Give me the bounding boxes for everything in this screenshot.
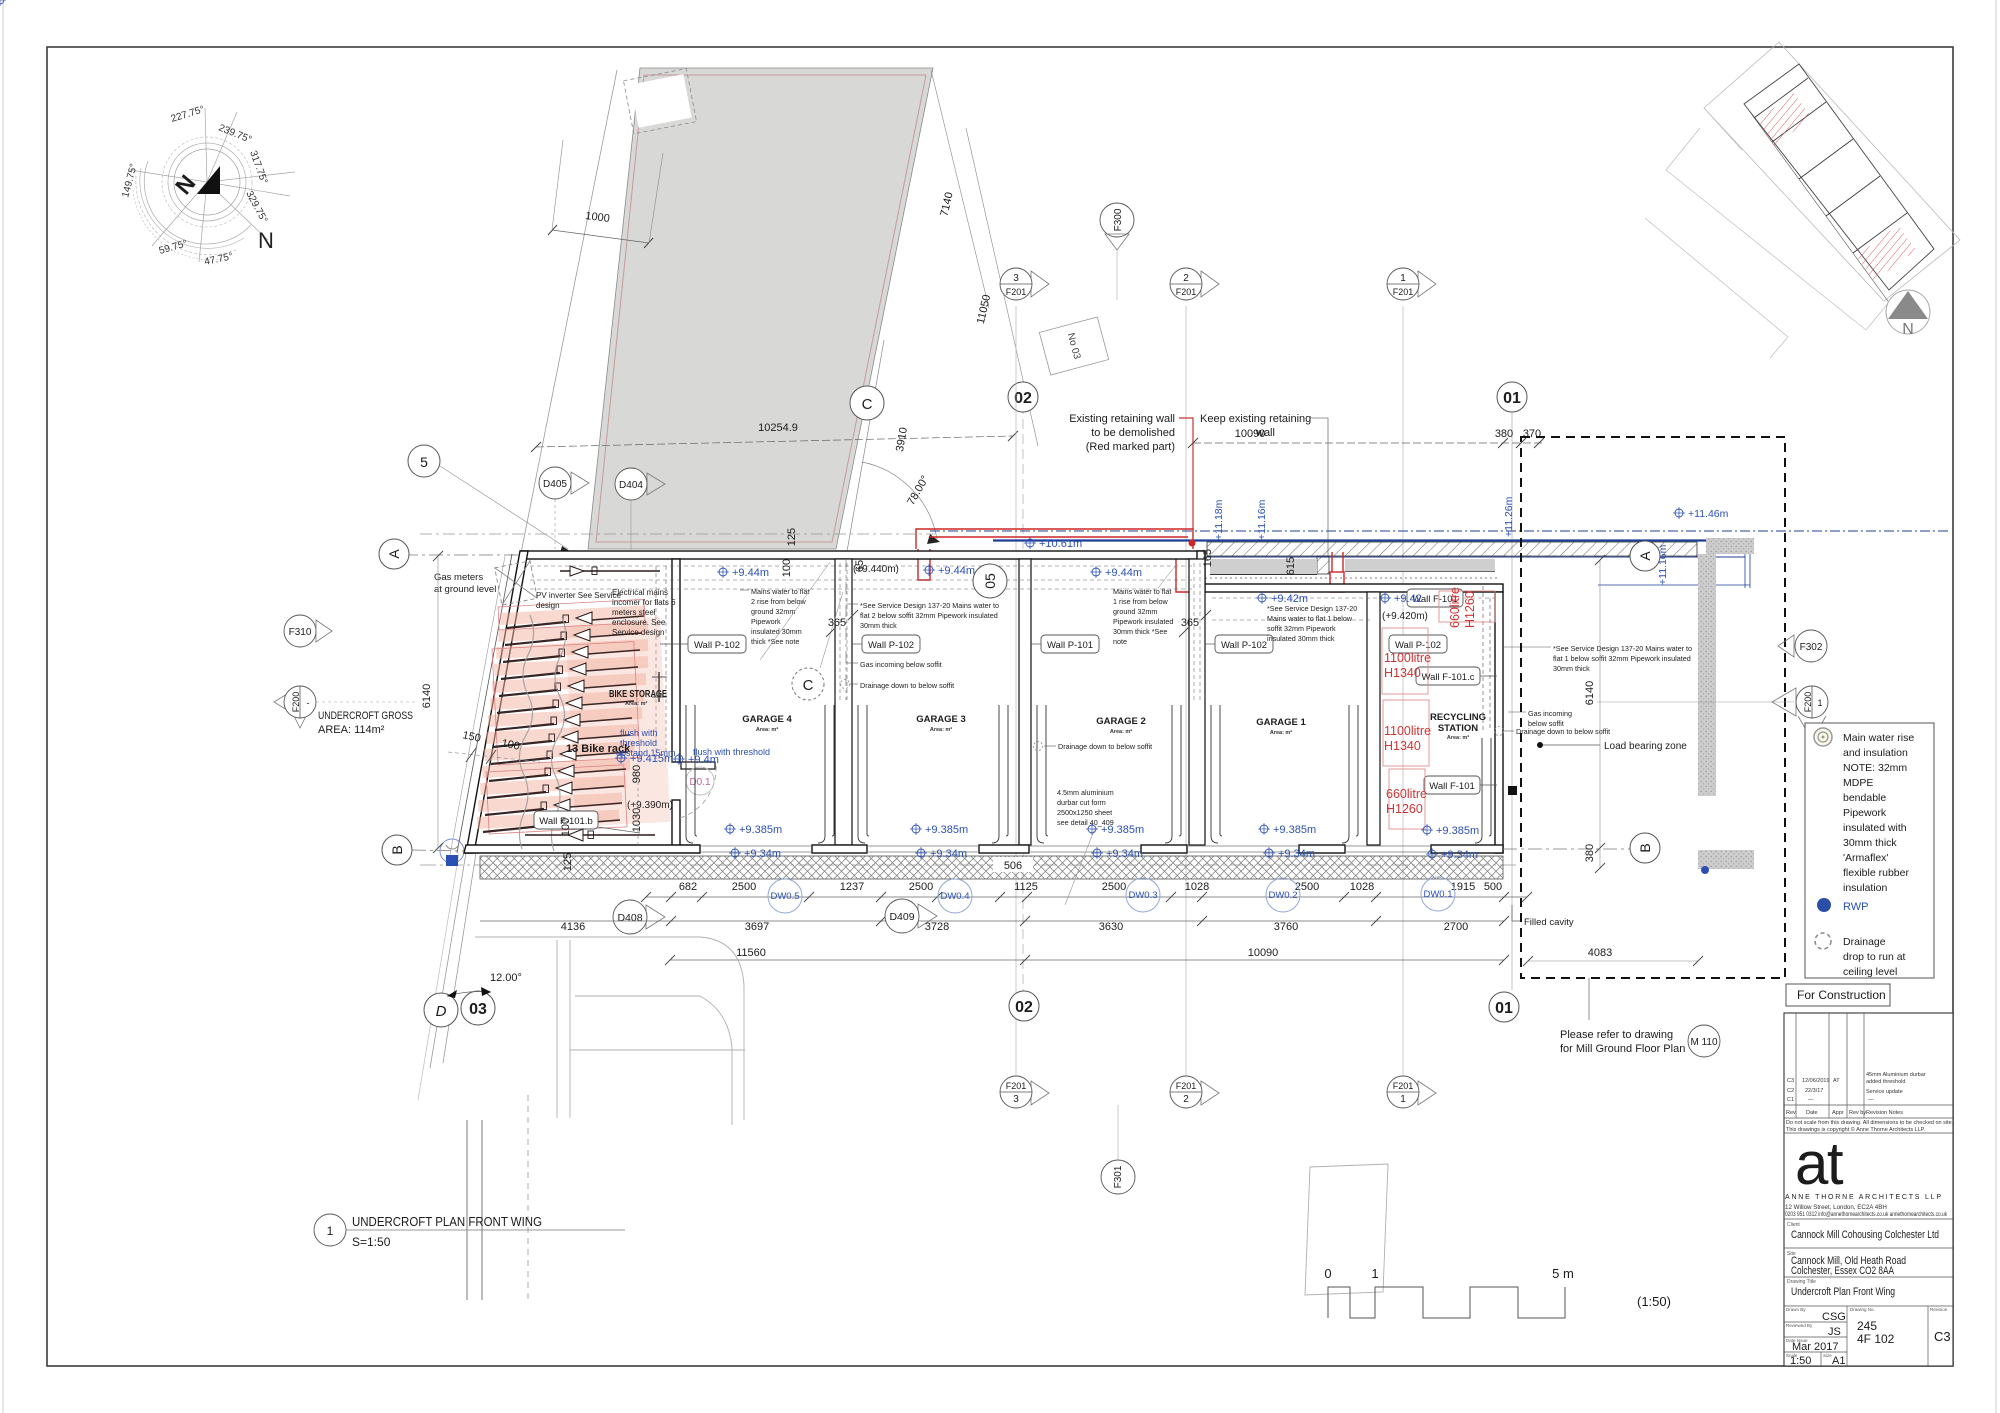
svg-text:Load bearing zone: Load bearing zone [1604, 741, 1687, 752]
svg-text:660litre: 660litre [1386, 787, 1427, 801]
svg-text:STATION: STATION [1438, 723, 1478, 734]
svg-text:-: - [307, 698, 310, 708]
svg-text:65: 65 [854, 560, 866, 572]
svg-text:Drainage down to below soffit: Drainage down to below soffit [1058, 742, 1152, 751]
svg-text:+9.34m: +9.34m [1106, 848, 1143, 860]
svg-text:2500x1250 sheet: 2500x1250 sheet [1057, 808, 1112, 817]
svg-text:1125: 1125 [1014, 881, 1038, 893]
svg-text:4.5mm aluminium: 4.5mm aluminium [1057, 788, 1114, 797]
svg-text:at: at [1795, 1130, 1844, 1197]
svg-text:B: B [389, 845, 405, 854]
svg-text:A: A [386, 549, 402, 559]
svg-text:125: 125 [562, 853, 574, 871]
svg-text:DW0.4: DW0.4 [940, 891, 969, 902]
svg-text:5: 5 [420, 454, 428, 470]
svg-text:A: A [1637, 551, 1653, 561]
svg-text:2: 2 [1183, 273, 1189, 284]
svg-text:H1260: H1260 [1386, 802, 1423, 816]
svg-text:*See Service Design 137-20 Mai: *See Service Design 137-20 Mains water t… [1553, 644, 1692, 653]
svg-text:JS: JS [1828, 1326, 1841, 1338]
svg-text:0: 0 [1324, 1266, 1331, 1281]
svg-text:—: — [1868, 1097, 1874, 1103]
svg-text:F301: F301 [1113, 1165, 1124, 1188]
svg-text:615: 615 [1285, 557, 1297, 575]
svg-text:Area: m²: Area: m² [1447, 734, 1469, 741]
svg-text:2500: 2500 [732, 881, 756, 893]
svg-text:1100litre: 1100litre [1384, 651, 1431, 665]
svg-text:F302: F302 [1800, 642, 1823, 653]
svg-text:Drainage: Drainage [1843, 936, 1886, 948]
svg-text:N: N [258, 228, 274, 253]
svg-text:3630: 3630 [1099, 921, 1123, 933]
svg-text:Wall P-102: Wall P-102 [868, 640, 914, 651]
svg-text:02: 02 [1014, 390, 1032, 407]
svg-text:C1: C1 [1787, 1097, 1794, 1103]
svg-text:10090: 10090 [1248, 947, 1279, 959]
svg-text:Area: m²: Area: m² [625, 700, 647, 707]
svg-text:6140: 6140 [1584, 681, 1596, 705]
svg-text:12 Willow Street, London, EC2A: 12 Willow Street, London, EC2A 4BH [1785, 1204, 1887, 1211]
svg-text:+11.16m: +11.16m [1256, 499, 1268, 540]
svg-text:22/3/17: 22/3/17 [1805, 1088, 1823, 1094]
svg-text:Gas incoming below soffit: Gas incoming below soffit [860, 660, 942, 669]
svg-text:*See Service Design 137-20 Mai: *See Service Design 137-20 Mains water t… [860, 601, 999, 610]
svg-text:(Red marked part): (Red marked part) [1086, 441, 1175, 453]
svg-text:100: 100 [781, 559, 793, 577]
svg-text:B: B [1637, 843, 1653, 852]
svg-text:Mar 2017: Mar 2017 [1792, 1341, 1838, 1353]
svg-text:Pipework: Pipework [751, 617, 781, 626]
svg-text:02: 02 [1015, 999, 1033, 1016]
svg-text:03: 03 [469, 1001, 487, 1018]
svg-text:Rev: Rev [1786, 1110, 1796, 1116]
svg-text:Do not scale from this drawing: Do not scale from this drawing. All dime… [1786, 1120, 1954, 1126]
svg-text:DW0.2: DW0.2 [1268, 890, 1297, 901]
svg-text:4136: 4136 [561, 921, 585, 933]
svg-text:Main water rise: Main water rise [1843, 732, 1914, 744]
svg-text:F201: F201 [1393, 287, 1414, 297]
svg-text:1028: 1028 [1350, 881, 1374, 893]
svg-text:Cannock Mill Cohousing Colches: Cannock Mill Cohousing Colchester Ltd [1791, 1229, 1939, 1241]
svg-text:1100litre: 1100litre [1384, 724, 1431, 738]
svg-text:+9.34m: +9.34m [1441, 849, 1478, 861]
svg-text:Please refer to drawing: Please refer to drawing [1560, 1029, 1673, 1041]
svg-text:+9.44m: +9.44m [938, 565, 975, 577]
svg-text:370: 370 [1523, 428, 1541, 440]
svg-text:+9.415m: +9.415m [630, 753, 673, 765]
svg-text:drop to run at: drop to run at [1843, 951, 1906, 963]
svg-text:Gas incoming: Gas incoming [1528, 709, 1572, 718]
svg-text:F201: F201 [1176, 287, 1197, 297]
svg-text:H1260: H1260 [1463, 591, 1477, 628]
svg-text:Undercroft Plan Front Wing: Undercroft Plan Front Wing [1791, 1286, 1895, 1298]
svg-text:H1340: H1340 [1384, 666, 1421, 680]
svg-text:1 rise from below: 1 rise from below [1113, 597, 1169, 606]
svg-text:1: 1 [1400, 1094, 1406, 1105]
svg-text:Electrical mains: Electrical mains [612, 588, 668, 597]
svg-text:insulated 30mm: insulated 30mm [751, 627, 802, 636]
svg-text:4083: 4083 [1588, 947, 1612, 959]
svg-text:Date: Date [1806, 1110, 1818, 1116]
svg-text:at ground level: at ground level [434, 584, 496, 595]
svg-text:S=1:50: S=1:50 [352, 1235, 391, 1249]
svg-text:Pipework insulated: Pipework insulated [1113, 617, 1173, 626]
svg-text:Colchester, Essex CO2 8AA: Colchester, Essex CO2 8AA [1791, 1265, 1894, 1277]
svg-text:flush with: flush with [620, 728, 658, 738]
svg-text:0203 951 0312 info@annethorne: 0203 951 0312 info@annethornearchitects.… [1785, 1211, 1948, 1218]
svg-text:RECYCLING: RECYCLING [1430, 712, 1486, 723]
svg-text:3697: 3697 [745, 921, 769, 933]
svg-text:Mains water to flat: Mains water to flat [751, 587, 809, 596]
svg-text:D404: D404 [619, 480, 643, 491]
svg-text:(+9.420m): (+9.420m) [1382, 611, 1428, 622]
svg-text:+9.385m: +9.385m [1436, 825, 1479, 837]
svg-text:ground 32mm: ground 32mm [751, 607, 795, 616]
svg-text:F201: F201 [1006, 287, 1027, 297]
svg-text:Area: m²: Area: m² [930, 726, 952, 733]
svg-text:Wall P-101: Wall P-101 [1047, 640, 1093, 651]
svg-text:F201: F201 [1393, 1081, 1414, 1091]
svg-text:M 110: M 110 [1690, 1037, 1717, 1048]
svg-text:05: 05 [982, 573, 998, 589]
svg-text:durbar cut form: durbar cut form [1057, 798, 1106, 807]
svg-text:10090: 10090 [1235, 428, 1266, 440]
svg-text:11560: 11560 [736, 947, 766, 959]
svg-text:Appr: Appr [1832, 1110, 1844, 1116]
svg-text:ceiling level: ceiling level [1843, 966, 1897, 978]
svg-text:D: D [436, 1003, 447, 1020]
svg-text:1: 1 [1371, 1266, 1378, 1281]
svg-text:to be demolished: to be demolished [1091, 427, 1175, 439]
svg-text:3: 3 [1013, 1094, 1019, 1105]
svg-text:flat 2 below soffit 32mm Pipew: flat 2 below soffit 32mm Pipework insula… [860, 611, 998, 620]
svg-text:For Construction: For Construction [1797, 988, 1886, 1002]
svg-text:Mains water to flat 1 below: Mains water to flat 1 below [1267, 614, 1353, 623]
svg-text:1:50: 1:50 [1790, 1355, 1811, 1367]
svg-text:(1:50): (1:50) [1637, 1294, 1671, 1309]
svg-text:Drawn By: Drawn By [1786, 1307, 1806, 1312]
svg-text:01: 01 [1495, 1000, 1513, 1017]
svg-text:Keep existing retaining: Keep existing retaining [1200, 413, 1311, 425]
svg-text:+11.46m: +11.46m [1688, 508, 1729, 520]
svg-text:Revision: Revision [1930, 1307, 1948, 1312]
svg-text:—: — [1808, 1097, 1814, 1103]
svg-text:RWP: RWP [1843, 901, 1868, 913]
svg-text:UNDERCROFT GROSS: UNDERCROFT GROSS [318, 710, 413, 722]
svg-text:insulation: insulation [1843, 882, 1888, 894]
svg-text:+9.385m: +9.385m [1273, 824, 1316, 836]
svg-text:682: 682 [679, 881, 697, 893]
svg-text:enclosure. See: enclosure. See [612, 618, 666, 627]
svg-text:506: 506 [1004, 860, 1022, 872]
svg-text:+11.26m: +11.26m [1503, 496, 1515, 537]
svg-text:6140: 6140 [421, 684, 433, 708]
svg-text:Rev by: Rev by [1849, 1110, 1866, 1116]
svg-text:ANNE THORNE ARCHITECTS LLP: ANNE THORNE ARCHITECTS LLP [1785, 1194, 1941, 1201]
svg-text:DW0.3: DW0.3 [1128, 890, 1157, 901]
svg-text:F310: F310 [289, 627, 312, 638]
svg-text:bendable: bendable [1843, 792, 1886, 804]
svg-text:1: 1 [327, 1224, 334, 1238]
svg-text:Drawing Title: Drawing Title [1787, 1279, 1816, 1285]
svg-text:1030: 1030 [631, 808, 643, 832]
svg-text:D0.1: D0.1 [689, 777, 711, 788]
svg-text:4F 102: 4F 102 [1857, 1332, 1895, 1346]
svg-text:ground 32mm: ground 32mm [1113, 607, 1157, 616]
svg-text:Service update: Service update [1866, 1089, 1903, 1095]
svg-text:F201: F201 [1006, 1081, 1027, 1091]
svg-text:100: 100 [560, 818, 572, 836]
svg-text:+10.61m: +10.61m [1039, 538, 1082, 550]
svg-text:soffit 32mm Pipework: soffit 32mm Pipework [1267, 624, 1336, 633]
svg-text:Revision Notes: Revision Notes [1866, 1110, 1903, 1116]
svg-text:insulated 30mm thick: insulated 30mm thick [1267, 634, 1335, 643]
svg-text:and insulation: and insulation [1843, 747, 1908, 759]
svg-text:2 rise from below: 2 rise from below [751, 597, 807, 606]
svg-text:12.00°: 12.00° [490, 972, 522, 984]
svg-text:Filled cavity: Filled cavity [1524, 917, 1574, 928]
svg-text:+9.385m: +9.385m [925, 824, 968, 836]
svg-text:CSG: CSG [1822, 1311, 1846, 1323]
svg-text:Existing retaining wall: Existing retaining wall [1069, 413, 1175, 425]
svg-text:*See Service Design 137-20: *See Service Design 137-20 [1267, 604, 1357, 613]
svg-text:NOTE: 32mm: NOTE: 32mm [1843, 762, 1907, 774]
svg-text:D405: D405 [543, 479, 567, 490]
svg-text:A1: A1 [1832, 1355, 1845, 1367]
svg-text:Wall P-102: Wall P-102 [694, 640, 740, 651]
svg-text:Drainage down to below soffit: Drainage down to below soffit [860, 681, 954, 690]
svg-text:1: 1 [1817, 698, 1822, 708]
svg-text:Size: Size [1823, 1353, 1832, 1358]
svg-text:2500: 2500 [909, 881, 933, 893]
svg-text:Area: m²: Area: m² [1270, 729, 1292, 736]
svg-text:Area: m²: Area: m² [1110, 728, 1132, 735]
svg-text:Mains water to flat: Mains water to flat [1113, 587, 1171, 596]
svg-text:3: 3 [1013, 273, 1019, 284]
svg-text:2700: 2700 [1444, 921, 1468, 933]
svg-text:+9.34m: +9.34m [1278, 848, 1315, 860]
svg-text:flat 1 below soffit 32mm Pipew: flat 1 below soffit 32mm Pipework insula… [1553, 654, 1691, 663]
svg-text:1237: 1237 [840, 881, 864, 893]
svg-text:H1340: H1340 [1384, 739, 1421, 753]
svg-text:+9.44m: +9.44m [1105, 567, 1142, 579]
svg-text:3760: 3760 [1274, 921, 1298, 933]
svg-text:GARAGE 2: GARAGE 2 [1096, 716, 1146, 727]
svg-text:500: 500 [1484, 881, 1502, 893]
svg-text:Wall F-101.c: Wall F-101.c [1422, 672, 1475, 683]
svg-text:45mm Aluminium durbar: 45mm Aluminium durbar [1866, 1072, 1926, 1078]
svg-text:+9.385m: +9.385m [1101, 824, 1144, 836]
svg-text:for Mill Ground Floor Plan: for Mill Ground Floor Plan [1560, 1043, 1685, 1055]
svg-text:+11.18m: +11.18m [1213, 499, 1225, 540]
svg-text:Service design: Service design [612, 628, 664, 637]
svg-text:F201: F201 [1176, 1081, 1197, 1091]
svg-text:GARAGE 1: GARAGE 1 [1256, 717, 1306, 728]
svg-text:30mm thick: 30mm thick [860, 621, 897, 630]
svg-text:+9.44m: +9.44m [732, 567, 769, 579]
svg-text:DW0.1: DW0.1 [1423, 889, 1452, 900]
svg-text:245: 245 [1857, 1319, 1877, 1333]
svg-text:MDPE: MDPE [1843, 777, 1873, 789]
svg-text:added threshold: added threshold [1866, 1079, 1905, 1085]
svg-text:Wall P-102: Wall P-102 [1395, 640, 1441, 651]
svg-text:AT: AT [1833, 1078, 1840, 1084]
svg-text:5 m: 5 m [1552, 1266, 1574, 1281]
svg-text:AREA: 114m²: AREA: 114m² [318, 724, 385, 736]
svg-text:'Armaflex': 'Armaflex' [1843, 852, 1888, 864]
svg-text:380: 380 [1584, 844, 1596, 862]
svg-text:+9.34m: +9.34m [744, 848, 781, 860]
svg-text:D409: D409 [889, 911, 914, 923]
svg-text:C2: C2 [1787, 1088, 1794, 1094]
svg-text:N: N [1902, 321, 1914, 338]
svg-text:Drainage down to below soffit: Drainage down to below soffit [1516, 727, 1610, 736]
svg-text:Area: m²: Area: m² [756, 726, 778, 733]
svg-text:01: 01 [1503, 390, 1521, 407]
svg-text:+9.385m: +9.385m [739, 824, 782, 836]
svg-text:UNDERCROFT PLAN FRONT WING: UNDERCROFT PLAN FRONT WING [352, 1215, 542, 1229]
svg-text:F200: F200 [1803, 692, 1813, 713]
svg-text:10254.9: 10254.9 [758, 422, 798, 434]
svg-text:+9.34m: +9.34m [930, 848, 967, 860]
svg-text:flexible rubber: flexible rubber [1843, 867, 1909, 879]
svg-text:3728: 3728 [925, 921, 949, 933]
svg-text:Gas meters: Gas meters [434, 572, 483, 583]
svg-text:30mm thick *See: 30mm thick *See [1113, 627, 1167, 636]
svg-text:660litre: 660litre [1448, 587, 1462, 628]
svg-text:2: 2 [1183, 1094, 1189, 1105]
svg-text:C3: C3 [1787, 1078, 1794, 1084]
svg-text:F200: F200 [291, 692, 301, 713]
svg-text:design: design [536, 601, 560, 610]
svg-text:12/06/2019: 12/06/2019 [1802, 1078, 1830, 1084]
svg-text:threshold: threshold [620, 738, 657, 748]
svg-text:365: 365 [828, 617, 846, 629]
svg-text:PV inverter See Service: PV inverter See Service [536, 591, 621, 600]
svg-text:D408: D408 [617, 912, 642, 924]
svg-text:F300: F300 [1113, 208, 1124, 231]
svg-text:125: 125 [786, 528, 798, 546]
svg-text:Pipework: Pipework [1843, 807, 1887, 819]
svg-text:30mm thick: 30mm thick [1553, 664, 1590, 673]
svg-text:165: 165 [1202, 549, 1214, 567]
svg-text:+9.4m: +9.4m [688, 754, 719, 766]
svg-text:Wall P-102: Wall P-102 [1221, 640, 1267, 651]
svg-text:Wall F-101: Wall F-101 [1429, 781, 1475, 792]
svg-text:+9.42m: +9.42m [1271, 593, 1308, 605]
svg-text:C3: C3 [1934, 1329, 1951, 1344]
svg-text:insulated with: insulated with [1843, 822, 1907, 834]
svg-text:Reviewed By: Reviewed By [1786, 1323, 1813, 1328]
svg-text:2500: 2500 [1102, 881, 1126, 893]
svg-text:Client: Client [1787, 1222, 1800, 1228]
svg-text:1028: 1028 [1185, 881, 1209, 893]
svg-text:+9.42: +9.42 [1394, 593, 1422, 605]
svg-text:C: C [803, 677, 814, 694]
svg-text:30mm thick: 30mm thick [1843, 837, 1897, 849]
svg-text:note: note [1113, 637, 1127, 646]
svg-text:GARAGE 3: GARAGE 3 [916, 714, 966, 725]
svg-text:meters steel: meters steel [612, 608, 656, 617]
svg-text:380: 380 [1495, 428, 1513, 440]
svg-text:incomer for flats 6: incomer for flats 6 [612, 598, 676, 607]
svg-text:1: 1 [1400, 273, 1406, 284]
svg-text:Drawing No.: Drawing No. [1850, 1307, 1875, 1312]
svg-text:C: C [862, 396, 873, 413]
svg-text:GARAGE 4: GARAGE 4 [742, 714, 792, 725]
svg-text:DW0.5: DW0.5 [770, 891, 799, 902]
svg-text:980: 980 [631, 765, 643, 783]
svg-text:365: 365 [1181, 617, 1199, 629]
